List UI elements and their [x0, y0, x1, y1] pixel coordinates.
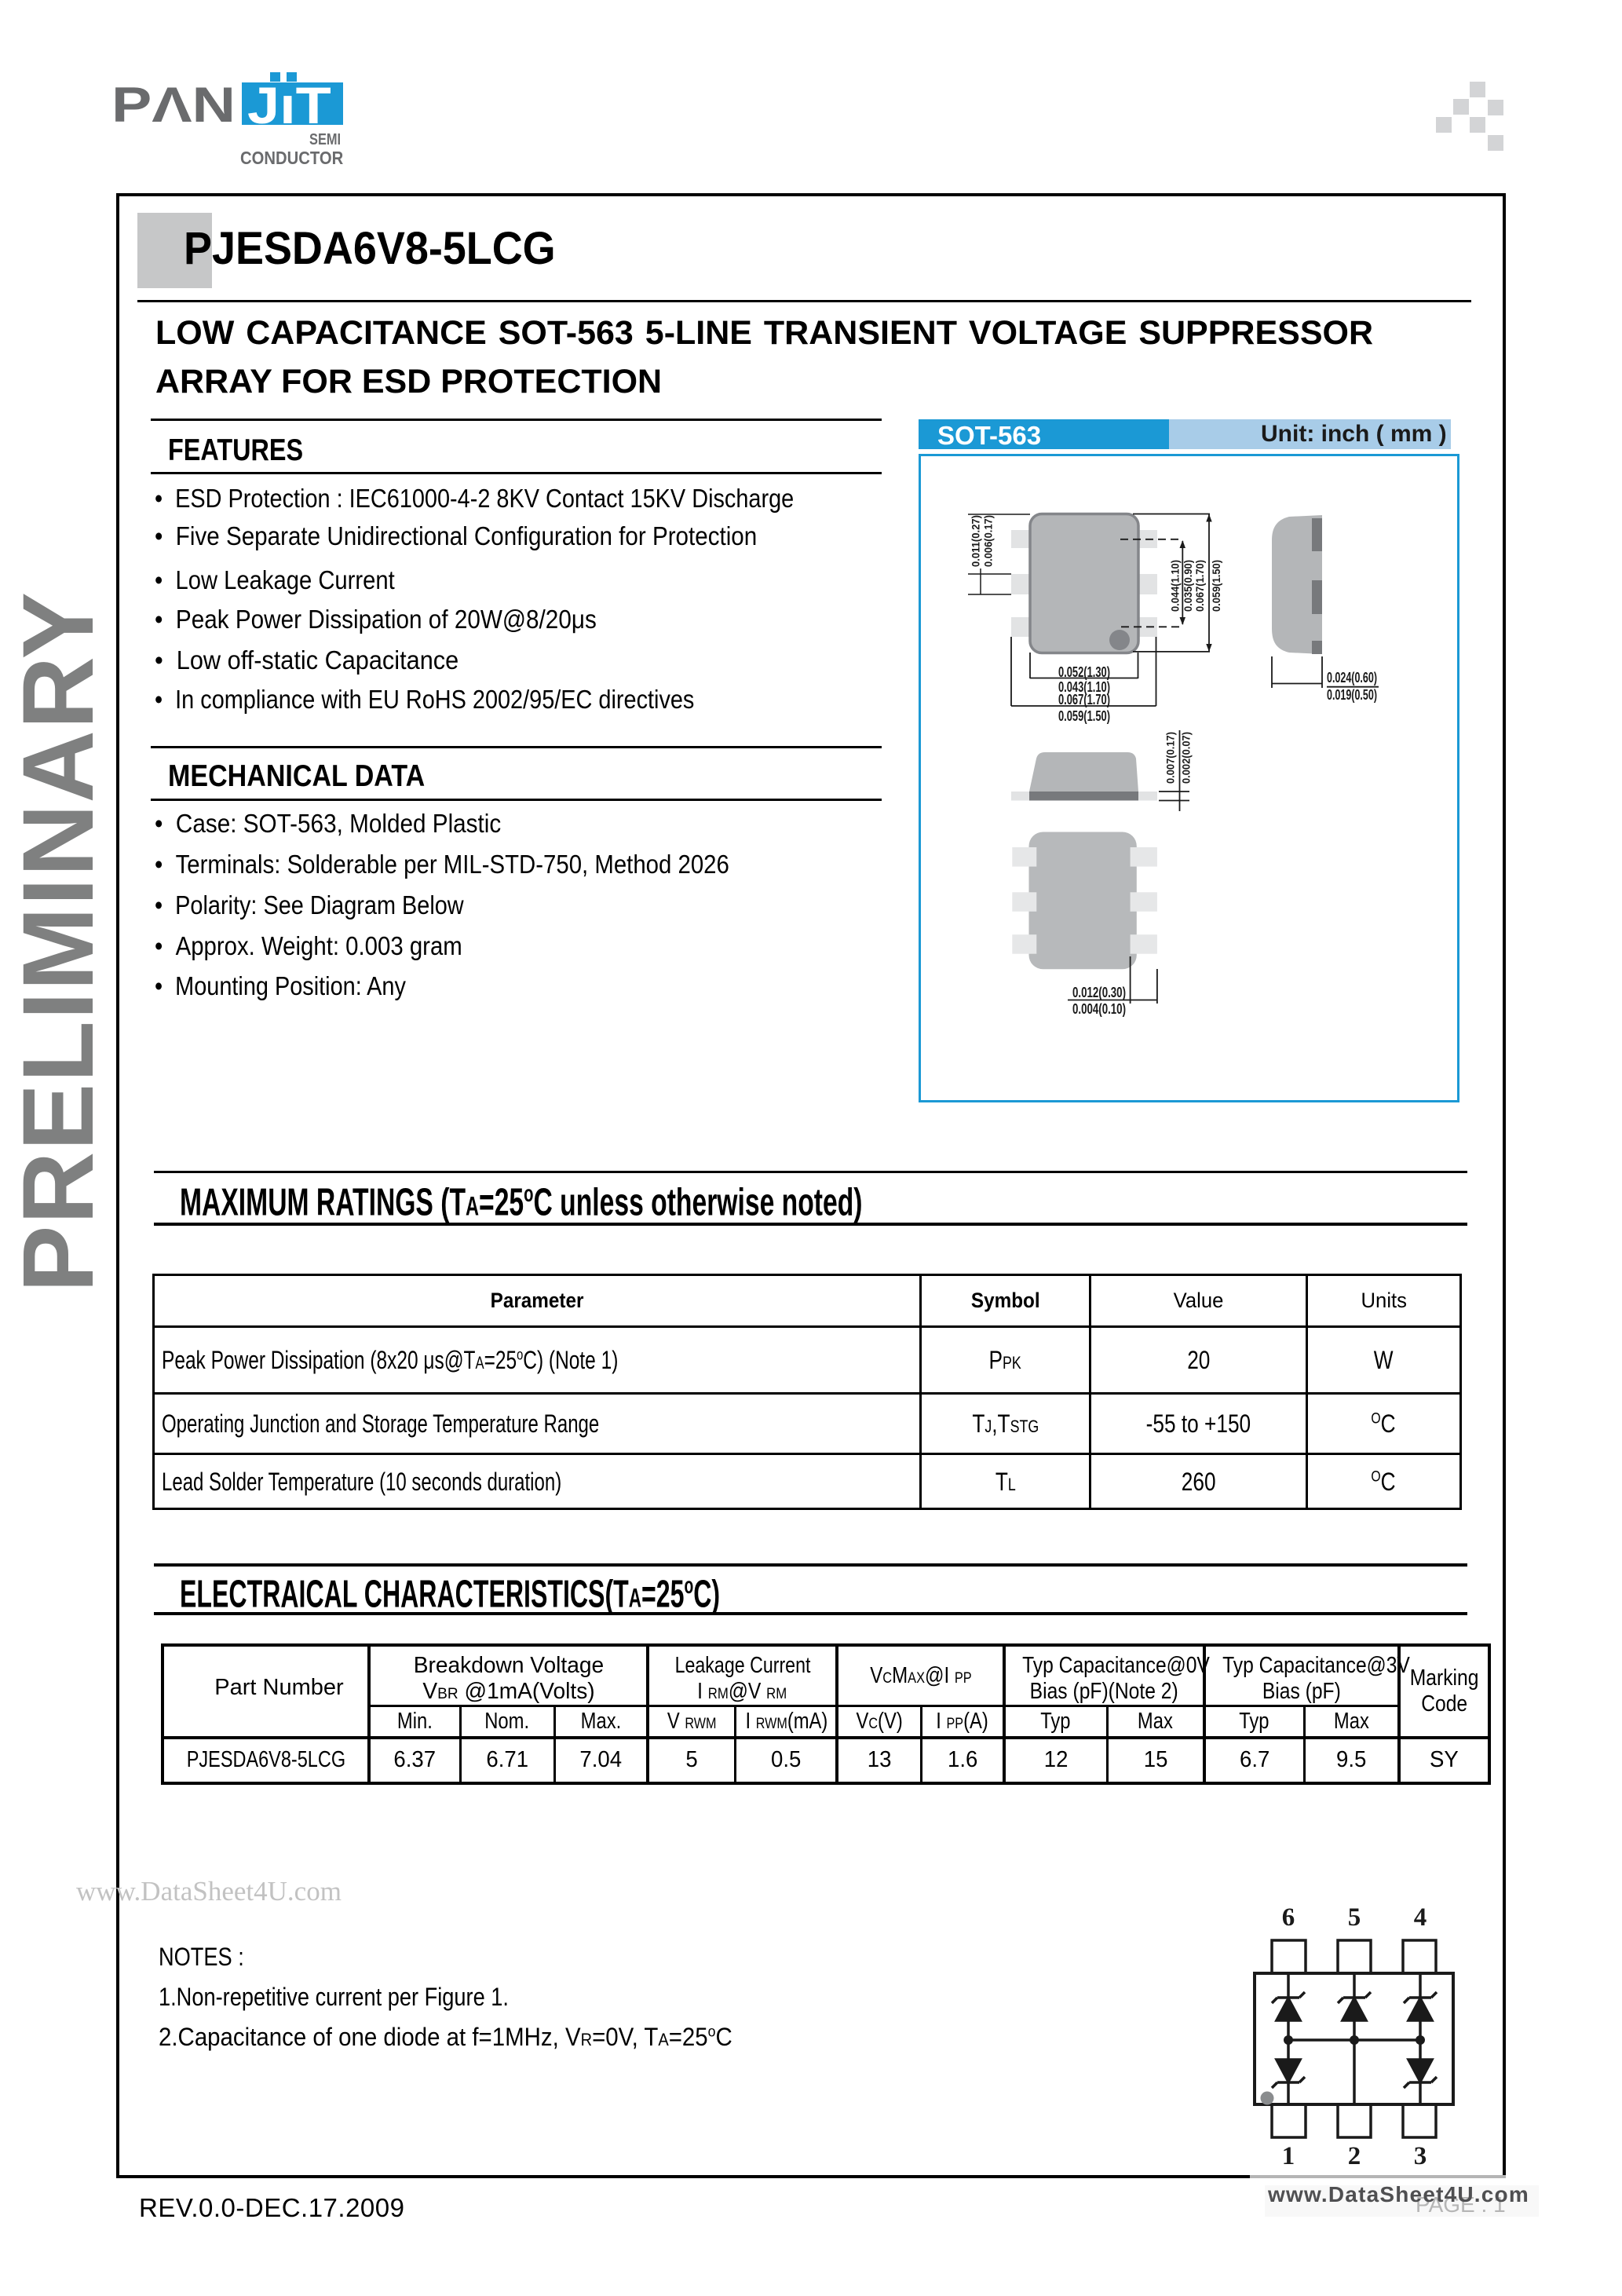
- svg-text:0.012(0.30): 0.012(0.30): [1072, 985, 1126, 1000]
- svg-text:0.004(0.10): 0.004(0.10): [1072, 1001, 1126, 1017]
- svg-text:2: 2: [1348, 2142, 1361, 2170]
- svg-text:0.067(1.70): 0.067(1.70): [1193, 560, 1206, 612]
- svg-text:0.024(0.60): 0.024(0.60): [1327, 670, 1377, 686]
- svg-text:4: 4: [1414, 1903, 1427, 1932]
- svg-text:5: 5: [1348, 1903, 1361, 1932]
- svg-text:0.044(1.10): 0.044(1.10): [1168, 560, 1181, 612]
- svg-text:6: 6: [1282, 1903, 1295, 1932]
- svg-text:0.007(0.17): 0.007(0.17): [1164, 732, 1177, 784]
- svg-text:0.002(0.07): 0.002(0.07): [1180, 732, 1193, 784]
- svg-text:0.011(0.27): 0.011(0.27): [970, 515, 982, 567]
- svg-text:0.059(1.50): 0.059(1.50): [1210, 560, 1222, 612]
- svg-text:0.006(0.17): 0.006(0.17): [982, 515, 995, 567]
- svg-text:1: 1: [1282, 2142, 1295, 2170]
- svg-text:0.052(1.30): 0.052(1.30): [1058, 664, 1110, 680]
- svg-text:0.035(0.90): 0.035(0.90): [1182, 560, 1194, 612]
- svg-text:0.067(1.70): 0.067(1.70): [1058, 692, 1110, 707]
- svg-text:3: 3: [1414, 2142, 1427, 2170]
- svg-text:0.059(1.50): 0.059(1.50): [1058, 708, 1110, 724]
- svg-text:0.019(0.50): 0.019(0.50): [1327, 687, 1377, 703]
